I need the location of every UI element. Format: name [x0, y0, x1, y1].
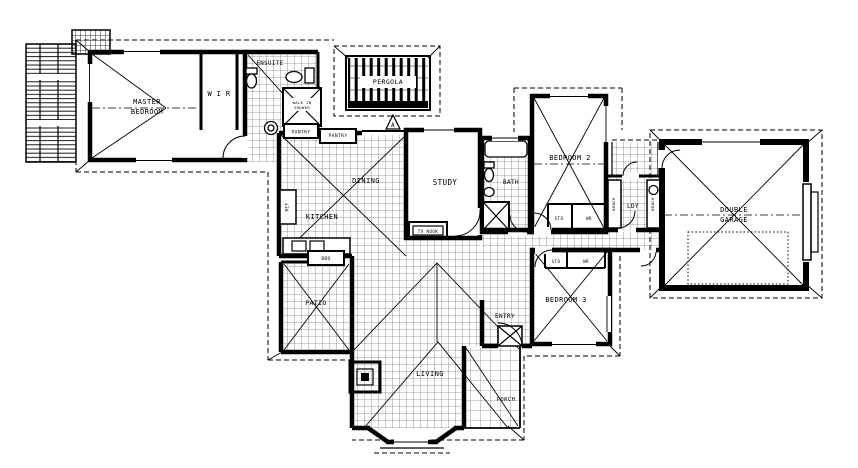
laundry-trough-icon	[649, 186, 658, 195]
label-master-1: MASTER	[133, 98, 161, 106]
garage-door-recess	[811, 192, 818, 252]
floor-plan-canvas: MASTERBEDROOMW I RENSUITEWALK INSHOWERPA…	[0, 0, 858, 468]
label-ldy: LDY	[627, 203, 639, 210]
window-bed2-north	[550, 93, 588, 100]
window-master-north	[124, 48, 160, 55]
label-patio: PATIO	[305, 299, 327, 307]
label-dining: DINING	[352, 177, 380, 185]
label-living: LIVING	[416, 370, 444, 378]
label-walkin-2: SHOWER	[294, 105, 310, 110]
floor-plan-page: MASTERBEDROOMW I RENSUITEWALK INSHOWERPA…	[0, 0, 858, 468]
label-sto-bed2: STO	[555, 216, 564, 221]
label-wir: W I R	[207, 90, 230, 98]
bedroom2-walls	[532, 96, 606, 236]
label-garage-2: GARAGE	[720, 216, 748, 224]
window-bath-north	[492, 135, 518, 141]
basin-icon	[286, 72, 302, 83]
window-master-south	[136, 157, 172, 164]
label-bedroom3: BEDROOM 3	[545, 296, 587, 304]
window-garage-north	[702, 138, 760, 146]
toilet-tank-icon	[484, 162, 494, 168]
label-wr-bed3: WR	[583, 259, 589, 264]
window-master-west	[86, 64, 93, 102]
window-dining-north	[424, 127, 454, 133]
label-entry: ENTRY	[495, 313, 515, 320]
toilet-icon	[485, 169, 494, 182]
label-bbq: BBQ	[321, 256, 330, 262]
basin-icon	[484, 188, 494, 197]
label-garage-1: DOUBLE	[720, 206, 748, 214]
label-master-2: BEDROOM	[131, 108, 163, 116]
label-bedroom2: BEDROOM 2	[549, 154, 591, 162]
window-bay	[394, 439, 428, 445]
label-porch: PORCH	[497, 397, 516, 403]
label-section-a: A	[391, 122, 395, 129]
label-kitchen: KITCHEN	[306, 213, 338, 221]
garage-apron	[688, 232, 788, 284]
toilet-tank-icon	[246, 68, 257, 74]
label-bath: BATH	[503, 179, 519, 186]
label-pergola: PERGOLA	[373, 78, 403, 86]
window-bed3-south	[552, 341, 596, 348]
shower-icon	[483, 202, 509, 230]
label-sto-bed3: STO	[552, 259, 561, 264]
front-door	[498, 326, 522, 346]
vanity-icon	[305, 68, 314, 83]
label-pantry-1: PANTRY	[292, 130, 311, 136]
label-bench-left: BENCH	[611, 197, 616, 211]
bathtub-icon	[485, 141, 527, 157]
label-pantry-2: PANTRY	[329, 133, 348, 139]
garage-door-panel	[803, 184, 811, 260]
toilet-icon	[247, 74, 257, 88]
floor-waste-inner	[268, 125, 274, 131]
label-wr-bed2: WR	[586, 216, 592, 221]
master-door	[223, 136, 249, 158]
label-study: STUDY	[433, 178, 458, 187]
window-bed3-east	[603, 296, 611, 332]
label-tv-nook: TV NOOK	[418, 229, 439, 234]
label-bench-right: BENCH	[650, 197, 655, 211]
label-ensuite: ENSUITE	[256, 61, 283, 67]
label-ref: REF	[285, 203, 290, 212]
window-bed2-east	[602, 106, 610, 142]
